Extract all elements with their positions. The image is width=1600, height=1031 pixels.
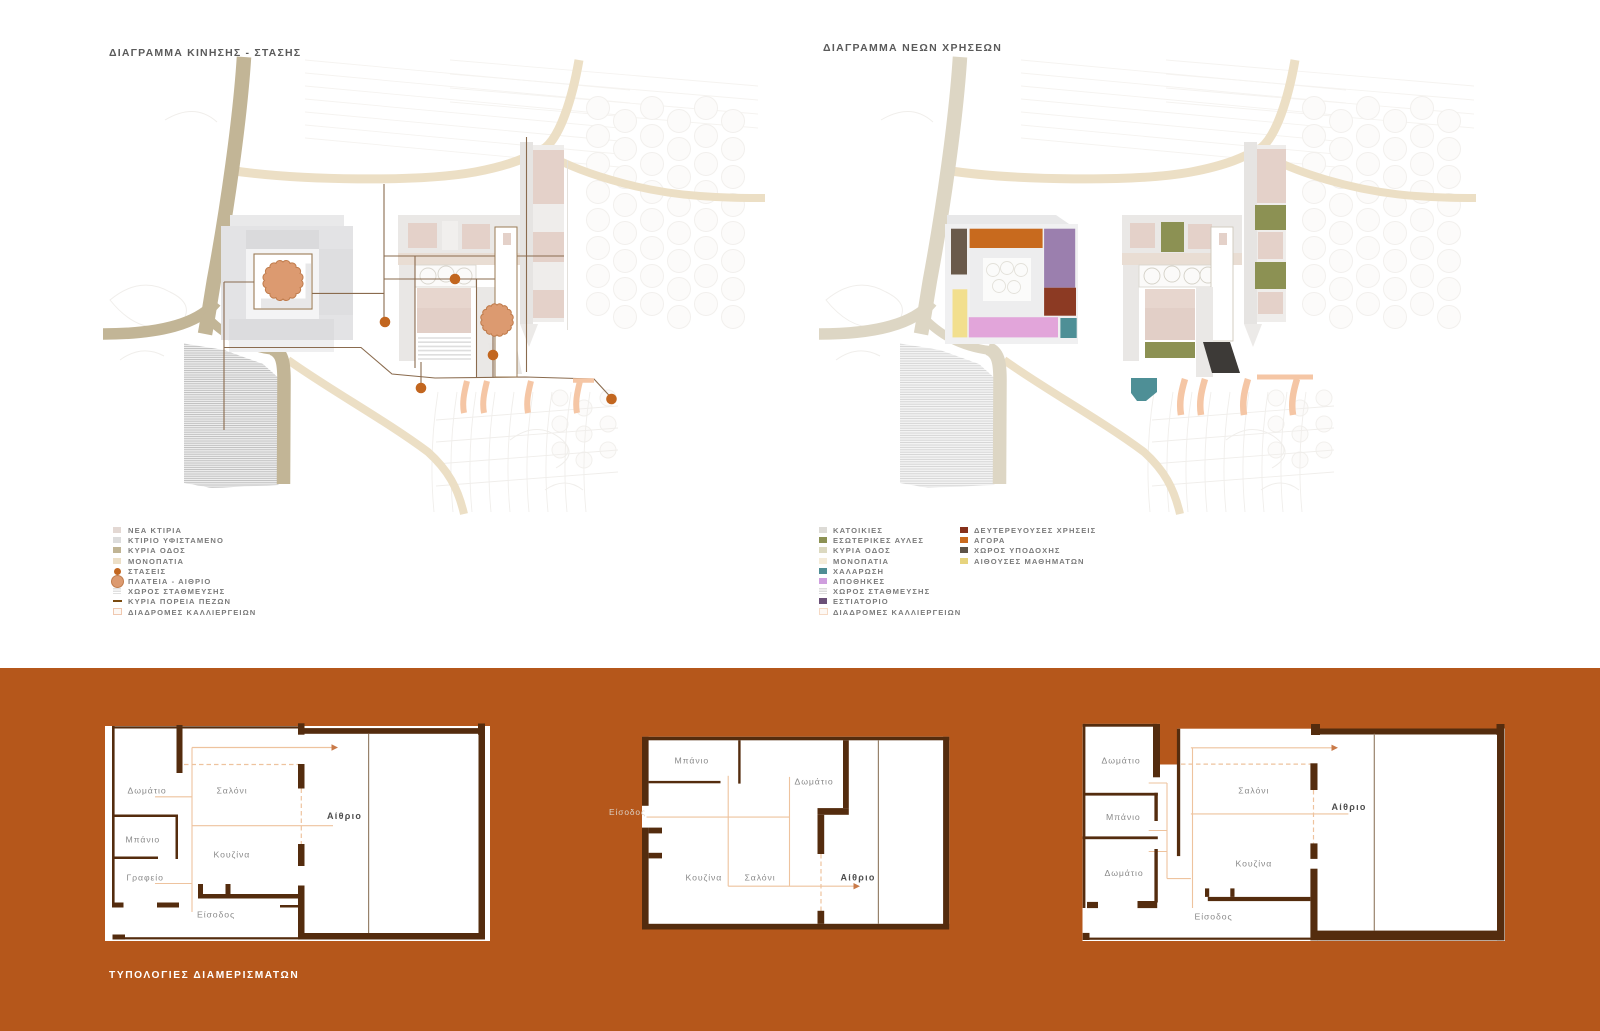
svg-text:Κουζίνα: Κουζίνα <box>214 850 251 860</box>
svg-text:Σαλόνι: Σαλόνι <box>1238 786 1269 796</box>
svg-text:Σαλόνι: Σαλόνι <box>217 786 248 796</box>
svg-text:Σαλόνι: Σαλόνι <box>745 873 776 883</box>
svg-text:Είσοδος: Είσοδος <box>197 910 235 920</box>
svg-text:Δωμάτιο: Δωμάτιο <box>1105 868 1144 878</box>
svg-text:Δωμάτιο: Δωμάτιο <box>1102 756 1141 766</box>
svg-text:Δωμάτιο: Δωμάτιο <box>128 786 167 796</box>
svg-text:Αίθριο: Αίθριο <box>1332 802 1367 812</box>
svg-text:Γραφείο: Γραφείο <box>127 873 164 883</box>
svg-text:Είσοδος: Είσοδος <box>1195 912 1233 922</box>
svg-text:Αίθριο: Αίθριο <box>841 873 876 883</box>
svg-text:Κουζίνα: Κουζίνα <box>686 873 723 883</box>
svg-text:Κουζίνα: Κουζίνα <box>1236 859 1273 869</box>
svg-text:Μπάνιο: Μπάνιο <box>675 756 710 766</box>
svg-text:Είσοδος: Είσοδος <box>609 807 646 817</box>
svg-text:Μπάνιο: Μπάνιο <box>126 835 161 845</box>
svg-text:Αίθριο: Αίθριο <box>327 811 362 821</box>
svg-text:Μπάνιο: Μπάνιο <box>1106 812 1141 822</box>
svg-text:Δωμάτιο: Δωμάτιο <box>795 777 834 787</box>
